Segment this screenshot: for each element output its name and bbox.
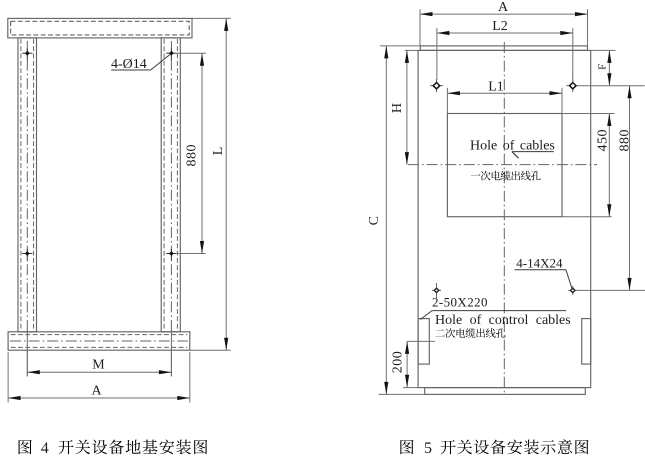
- svg-text:C: C: [367, 216, 382, 225]
- svg-text:450: 450: [596, 129, 611, 152]
- svg-text:A: A: [498, 0, 509, 15]
- svg-text:M: M: [92, 357, 105, 372]
- svg-text:2-50X220: 2-50X220: [432, 294, 488, 309]
- svg-text:Hole of control cables: Hole of control cables: [435, 313, 571, 328]
- svg-text:L1: L1: [488, 79, 504, 94]
- svg-text:5: 5: [424, 440, 432, 457]
- svg-text:A: A: [91, 383, 102, 398]
- svg-text:F: F: [596, 64, 608, 70]
- svg-text:4: 4: [41, 440, 49, 457]
- svg-text:880: 880: [617, 129, 632, 152]
- svg-text:4-14X24: 4-14X24: [516, 255, 563, 270]
- svg-text:L: L: [211, 147, 226, 156]
- svg-text:L2: L2: [492, 19, 508, 34]
- svg-text:200: 200: [391, 351, 406, 374]
- svg-text:H: H: [390, 103, 405, 113]
- svg-text:880: 880: [184, 144, 199, 167]
